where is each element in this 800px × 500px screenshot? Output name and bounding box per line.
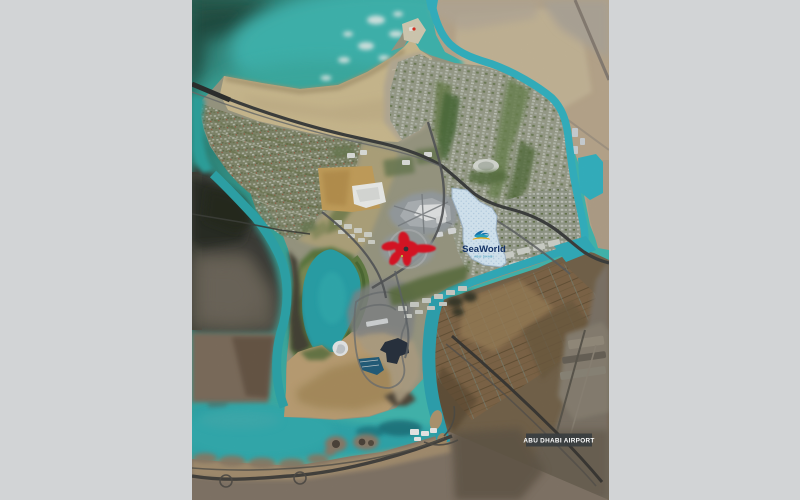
svg-text:ABU DHABI AIRPORT: ABU DHABI AIRPORT bbox=[523, 438, 594, 445]
